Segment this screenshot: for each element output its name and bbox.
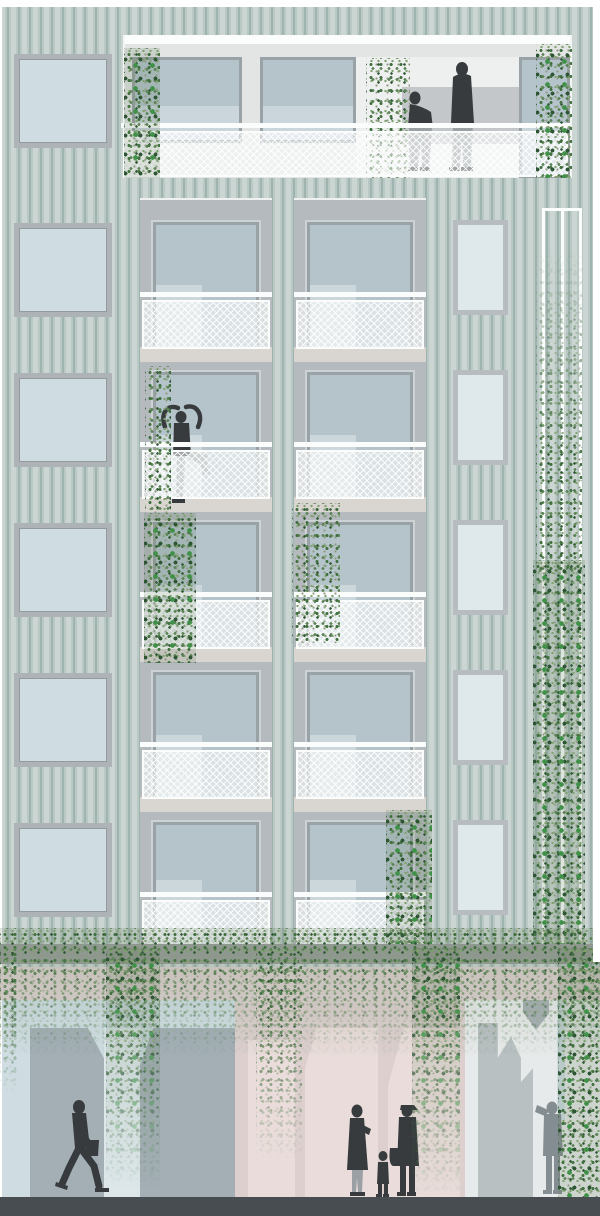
child-body xyxy=(377,1162,389,1184)
facade-window-narrow xyxy=(453,670,508,765)
balcony-railing xyxy=(296,742,424,799)
person-head xyxy=(402,1105,413,1117)
balcony-module xyxy=(140,212,272,362)
floor-slab xyxy=(294,647,426,662)
facade-window xyxy=(14,523,112,617)
person-head xyxy=(73,1100,85,1114)
person-torso xyxy=(451,74,474,123)
balcony-vine xyxy=(144,513,196,663)
floor-slab xyxy=(140,347,272,362)
person-leg xyxy=(62,1150,78,1184)
facade-window xyxy=(14,673,112,767)
terrace-vine xyxy=(536,44,572,178)
paper-margin-right xyxy=(593,0,600,962)
terrace-railing xyxy=(123,123,568,177)
ground-vine-column xyxy=(558,948,600,1210)
person-legs xyxy=(352,1170,363,1192)
ground-vine-column xyxy=(256,948,302,1166)
balcony-railing xyxy=(142,742,270,799)
person-torso xyxy=(347,1118,368,1170)
terrace-fascia xyxy=(125,35,570,44)
terrace-vine xyxy=(124,48,160,178)
bag xyxy=(389,1148,402,1166)
balcony-vine xyxy=(145,366,171,514)
ground-vine-column xyxy=(0,948,18,1098)
trellis-vine xyxy=(533,560,585,950)
child-head xyxy=(379,1151,388,1161)
facade-window xyxy=(14,373,112,467)
pedestrian-walking xyxy=(53,1098,111,1198)
facade-window-narrow xyxy=(453,820,508,915)
ground-vine-column xyxy=(412,948,460,1204)
facade-window-narrow xyxy=(453,220,508,315)
balcony-railing xyxy=(296,442,424,499)
balcony-module xyxy=(140,812,272,947)
paper-margin-left xyxy=(0,7,2,967)
facade-window xyxy=(14,54,112,148)
facade-window-narrow xyxy=(453,520,508,615)
facade-window xyxy=(14,823,112,917)
balcony-vine xyxy=(292,503,340,643)
balcony-railing xyxy=(142,292,270,349)
facade-window-narrow xyxy=(453,370,508,465)
floor-slab xyxy=(294,347,426,362)
elevation-drawing xyxy=(0,0,600,1216)
balcony-railing xyxy=(296,292,424,349)
balcony-module xyxy=(294,662,426,812)
person-head xyxy=(547,1102,558,1115)
balcony-module xyxy=(294,212,426,362)
floor-slab xyxy=(140,797,272,812)
paper-margin-top xyxy=(0,0,600,7)
person-head xyxy=(410,92,421,105)
person-head xyxy=(352,1105,363,1118)
balcony-module xyxy=(140,662,272,812)
trellis-vine xyxy=(536,250,582,570)
facade-window xyxy=(14,223,112,317)
sidewalk xyxy=(0,1197,600,1216)
person-head xyxy=(176,411,187,423)
balcony-module xyxy=(294,362,426,512)
ground-vine-column xyxy=(106,948,160,1196)
